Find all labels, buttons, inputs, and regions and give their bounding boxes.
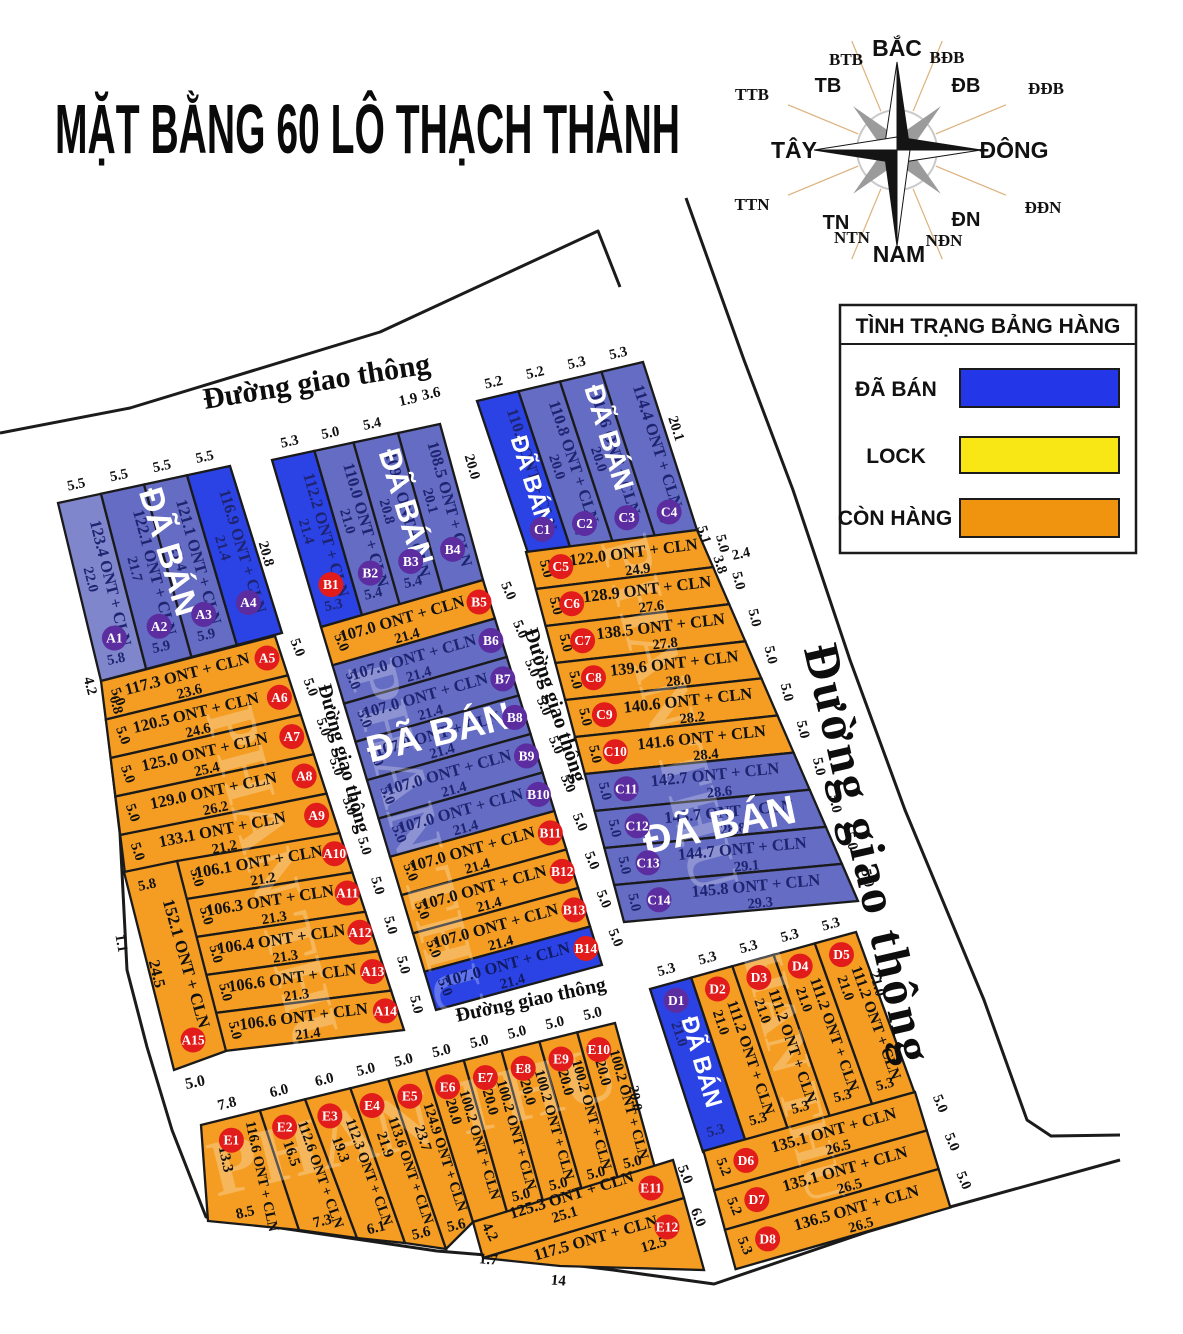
svg-text:B13: B13: [563, 902, 586, 917]
svg-text:A3: A3: [195, 607, 212, 622]
svg-text:ĐÃ BÁN: ĐÃ BÁN: [855, 378, 937, 401]
svg-text:B5: B5: [471, 595, 487, 610]
svg-text:29.3: 29.3: [747, 894, 774, 912]
svg-text:C8: C8: [585, 670, 602, 685]
svg-text:B3: B3: [403, 554, 419, 569]
svg-text:D3: D3: [751, 970, 768, 985]
svg-text:E4: E4: [364, 1098, 380, 1113]
svg-text:E12: E12: [656, 1220, 679, 1235]
svg-text:A1: A1: [106, 631, 123, 646]
svg-text:BẮC: BẮC: [872, 34, 922, 61]
svg-text:29.1: 29.1: [733, 857, 760, 875]
svg-text:C1: C1: [534, 522, 551, 537]
svg-text:LOCK: LOCK: [866, 445, 926, 468]
svg-text:ĐB: ĐB: [952, 75, 981, 97]
svg-text:CÒN HÀNG: CÒN HÀNG: [838, 506, 952, 530]
svg-text:A2: A2: [151, 619, 168, 634]
svg-text:E5: E5: [402, 1089, 418, 1104]
svg-text:21.4: 21.4: [294, 1025, 321, 1044]
svg-text:D6: D6: [738, 1153, 755, 1168]
svg-text:B6: B6: [483, 633, 499, 648]
svg-text:TB: TB: [815, 75, 842, 97]
svg-text:B1: B1: [323, 577, 339, 592]
svg-text:A4: A4: [240, 595, 257, 610]
svg-text:E11: E11: [640, 1181, 662, 1196]
svg-text:28.2: 28.2: [679, 709, 706, 728]
svg-text:ĐÔNG: ĐÔNG: [980, 136, 1049, 163]
svg-text:C10: C10: [604, 744, 627, 759]
svg-text:A7: A7: [284, 729, 301, 744]
svg-text:A10: A10: [323, 846, 346, 861]
svg-text:TTB: TTB: [735, 85, 769, 104]
svg-text:D4: D4: [792, 959, 809, 974]
svg-text:D5: D5: [833, 947, 850, 962]
svg-text:A9: A9: [308, 808, 325, 823]
svg-text:C9: C9: [596, 707, 613, 722]
svg-text:E9: E9: [553, 1052, 569, 1067]
svg-text:A11: A11: [336, 886, 359, 901]
svg-text:B9: B9: [519, 748, 535, 763]
svg-text:27.8: 27.8: [652, 635, 679, 654]
svg-text:NĐN: NĐN: [926, 231, 964, 250]
svg-text:E6: E6: [440, 1079, 456, 1094]
svg-text:B8: B8: [507, 710, 523, 725]
svg-text:C5: C5: [553, 559, 570, 574]
svg-text:A5: A5: [259, 651, 276, 666]
svg-text:C6: C6: [563, 596, 580, 611]
svg-text:B14: B14: [575, 941, 598, 956]
svg-text:A14: A14: [374, 1003, 397, 1018]
svg-text:C11: C11: [615, 781, 638, 796]
svg-text:B4: B4: [445, 542, 461, 557]
svg-text:E7: E7: [478, 1070, 494, 1085]
svg-text:BĐB: BĐB: [930, 48, 965, 67]
svg-text:A8: A8: [296, 769, 313, 784]
svg-text:1.1: 1.1: [111, 933, 130, 954]
svg-text:27.6: 27.6: [638, 598, 665, 617]
svg-text:B11: B11: [539, 825, 561, 840]
svg-text:28.0: 28.0: [665, 672, 692, 691]
svg-text:A15: A15: [181, 1033, 204, 1048]
svg-text:B12: B12: [551, 864, 574, 879]
svg-text:E1: E1: [224, 1133, 240, 1148]
svg-text:B2: B2: [362, 566, 378, 581]
svg-text:C4: C4: [661, 504, 678, 519]
svg-text:1.7: 1.7: [478, 1251, 499, 1269]
svg-text:ĐN: ĐN: [952, 209, 981, 231]
svg-text:C2: C2: [576, 516, 593, 531]
svg-text:E2: E2: [277, 1120, 293, 1135]
svg-text:C14: C14: [647, 892, 670, 907]
svg-text:28.6: 28.6: [706, 783, 733, 802]
svg-text:C3: C3: [619, 510, 636, 525]
svg-text:24.9: 24.9: [624, 560, 651, 579]
svg-text:E3: E3: [322, 1108, 338, 1123]
svg-text:NAM: NAM: [873, 241, 925, 267]
svg-text:ĐĐN: ĐĐN: [1025, 198, 1063, 217]
svg-text:C13: C13: [636, 855, 659, 870]
svg-text:E10: E10: [588, 1042, 611, 1057]
svg-text:C12: C12: [625, 818, 648, 833]
svg-text:14: 14: [550, 1272, 567, 1289]
svg-text:D8: D8: [759, 1231, 776, 1246]
svg-text:TÂY: TÂY: [771, 136, 817, 163]
svg-text:D1: D1: [668, 993, 685, 1008]
svg-text:TTN: TTN: [735, 195, 771, 214]
svg-text:28.4: 28.4: [692, 746, 719, 765]
svg-text:B10: B10: [527, 787, 550, 802]
svg-text:D7: D7: [749, 1192, 766, 1207]
svg-text:BTB: BTB: [829, 50, 863, 69]
svg-text:E8: E8: [515, 1061, 531, 1076]
svg-text:ĐĐB: ĐĐB: [1028, 79, 1064, 98]
svg-text:D2: D2: [709, 982, 726, 997]
svg-text:MẶT BẰNG 60 LÔ THẠCH THÀNH: MẶT BẰNG 60 LÔ THẠCH THÀNH: [55, 89, 680, 168]
svg-text:B7: B7: [495, 671, 511, 686]
svg-text:NTN: NTN: [834, 228, 871, 247]
svg-text:TÌNH TRẠNG BẢNG HÀNG: TÌNH TRẠNG BẢNG HÀNG: [856, 315, 1121, 338]
svg-text:A12: A12: [348, 925, 371, 940]
svg-text:A6: A6: [271, 690, 288, 705]
svg-text:A13: A13: [361, 964, 384, 979]
svg-text:C7: C7: [574, 633, 591, 648]
